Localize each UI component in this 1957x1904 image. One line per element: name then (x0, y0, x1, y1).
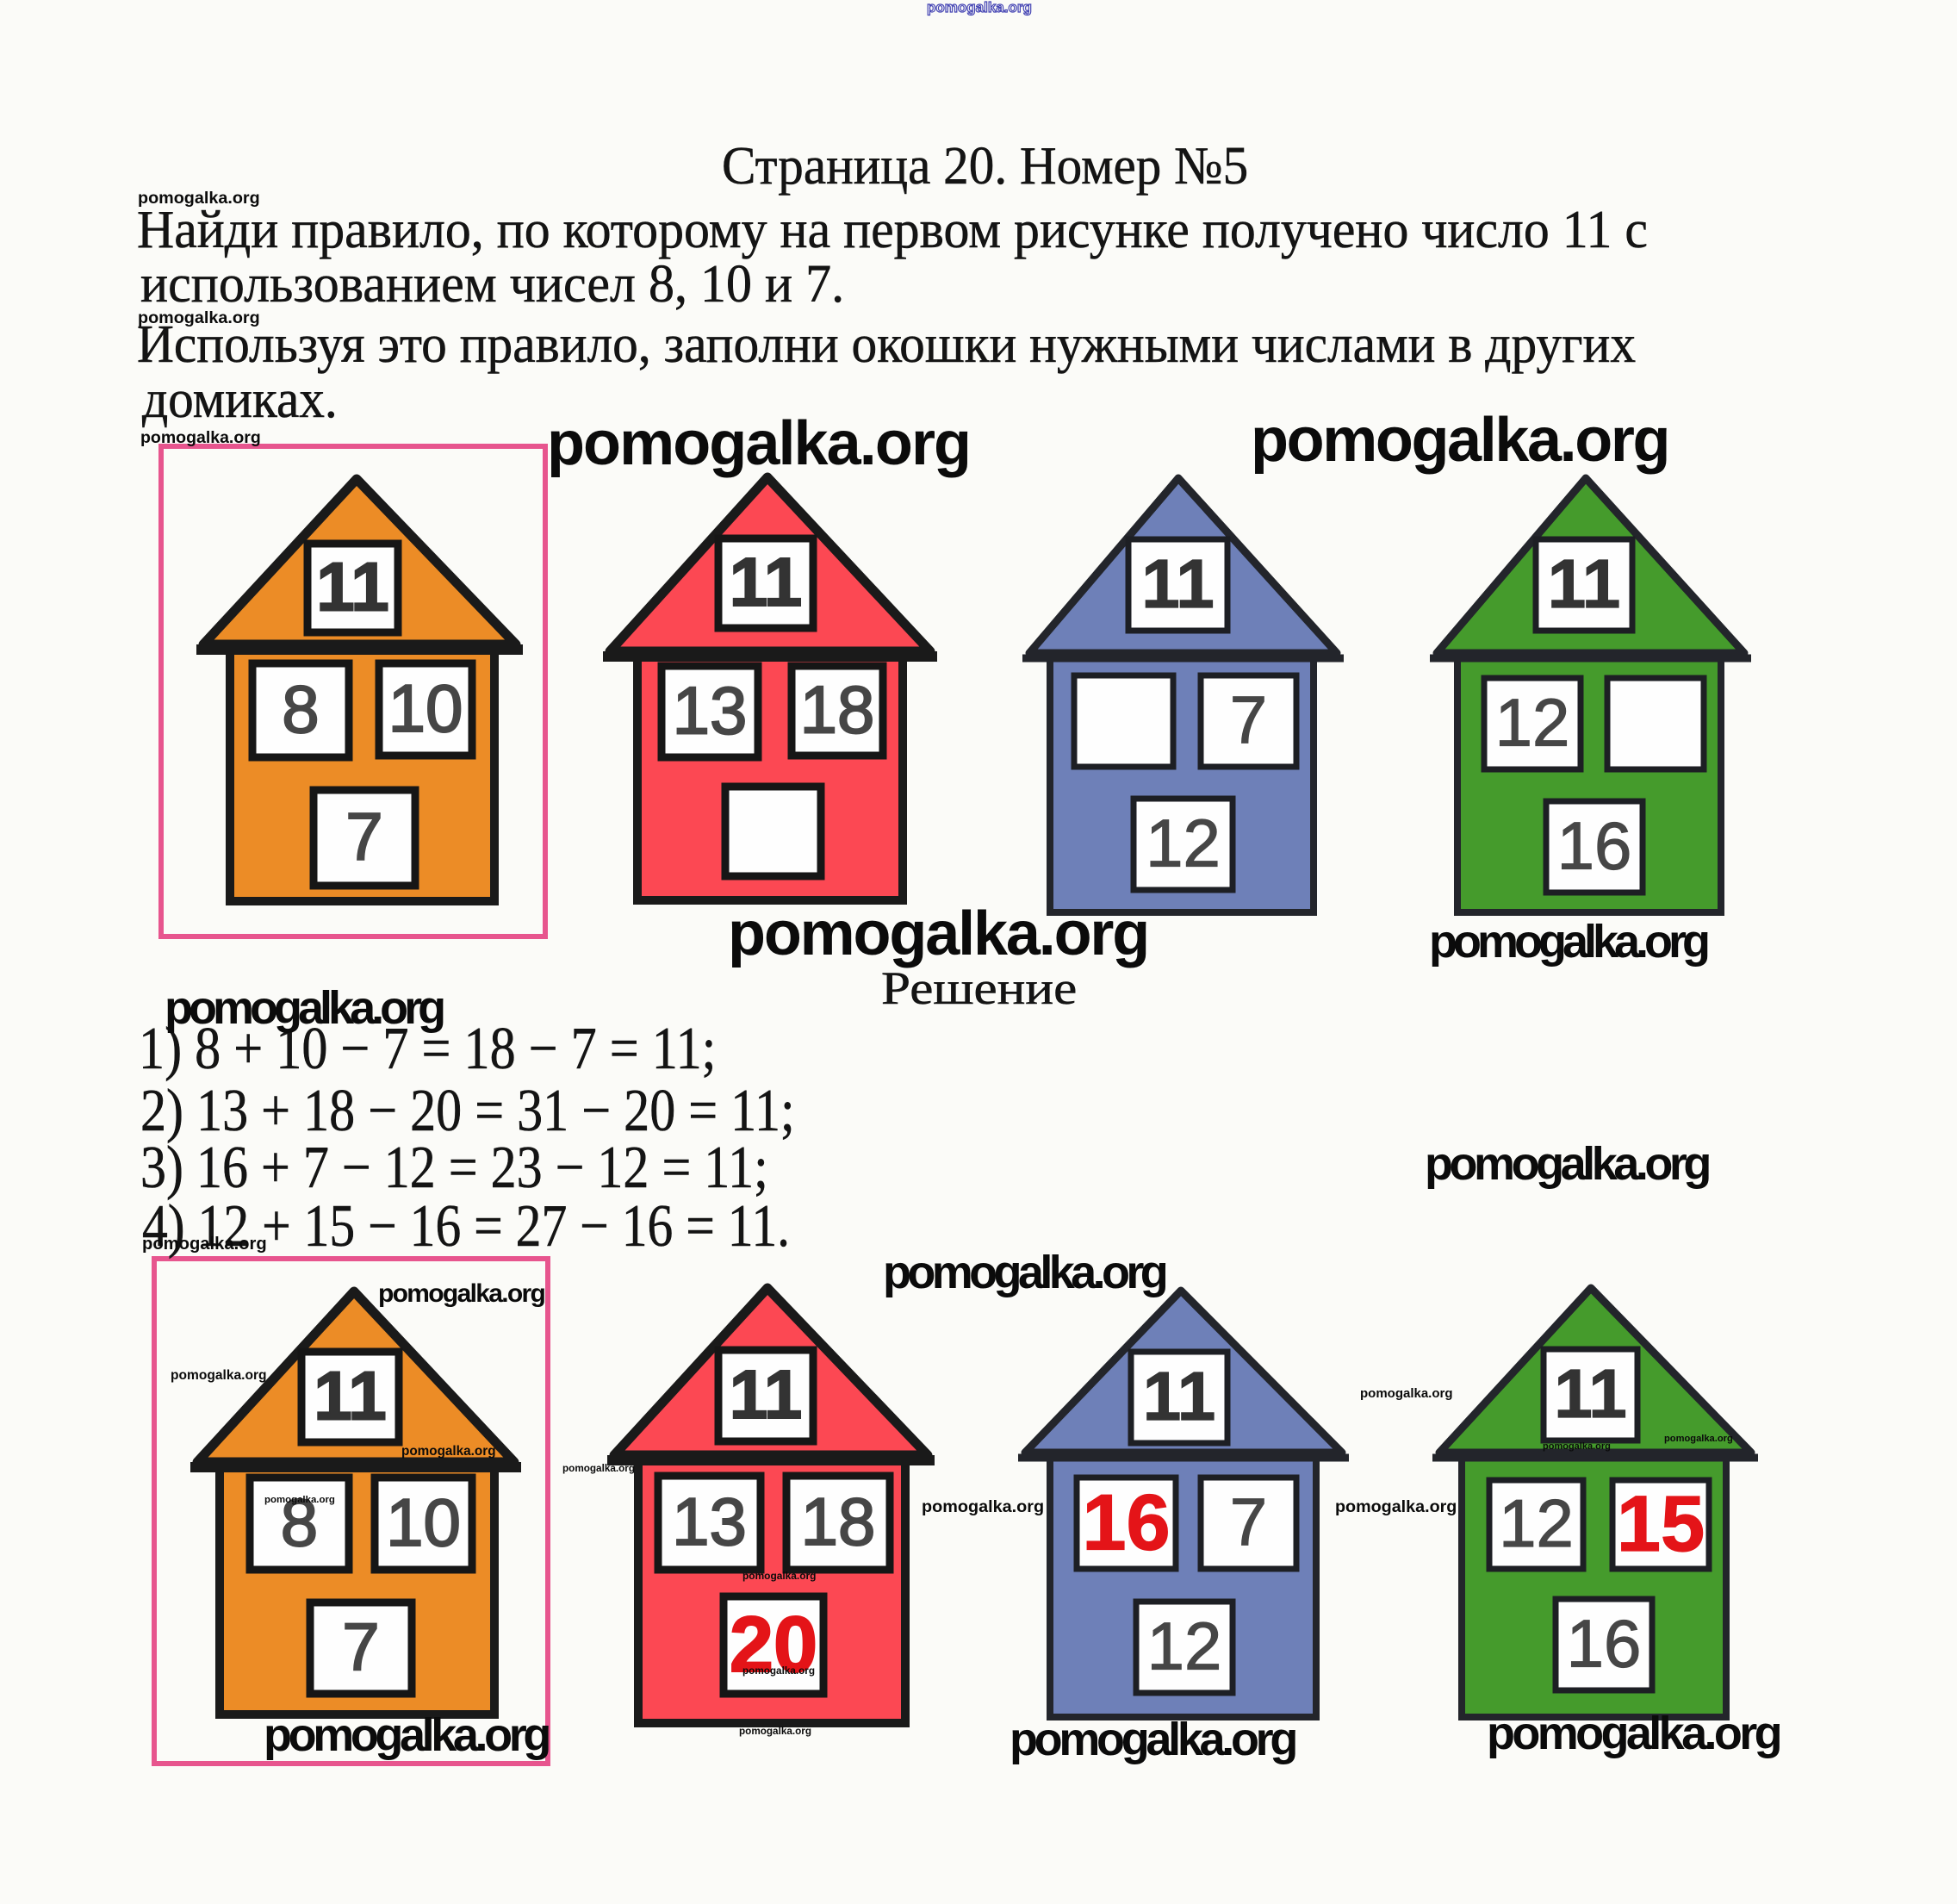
svg-text:15: 15 (1617, 1480, 1705, 1568)
svg-text:11: 11 (314, 1358, 387, 1434)
svg-text:10: 10 (388, 670, 463, 746)
svg-text:12: 12 (1499, 1485, 1574, 1561)
svg-text:11: 11 (730, 544, 803, 620)
svg-text:18: 18 (800, 671, 875, 747)
svg-text:11: 11 (1554, 1355, 1627, 1432)
svg-text:13: 13 (672, 1484, 747, 1559)
svg-text:13: 13 (673, 672, 748, 748)
svg-text:11: 11 (1548, 545, 1621, 622)
svg-text:12: 12 (1495, 684, 1570, 760)
svg-text:16: 16 (1557, 807, 1632, 883)
svg-text:8: 8 (282, 671, 319, 747)
svg-text:7: 7 (342, 1608, 379, 1684)
svg-text:11: 11 (730, 1356, 803, 1433)
svg-text:7: 7 (345, 799, 382, 874)
svg-text:11: 11 (1141, 545, 1215, 622)
svg-text:10: 10 (386, 1484, 461, 1560)
svg-text:11: 11 (316, 549, 389, 625)
svg-text:12: 12 (1147, 1608, 1222, 1683)
svg-text:16: 16 (1567, 1605, 1642, 1681)
svg-text:18: 18 (801, 1484, 876, 1559)
svg-text:7: 7 (1230, 681, 1267, 757)
svg-text:16: 16 (1082, 1479, 1170, 1567)
svg-text:7: 7 (1230, 1484, 1267, 1559)
svg-text:11: 11 (1143, 1358, 1216, 1434)
svg-text:12: 12 (1146, 805, 1221, 880)
